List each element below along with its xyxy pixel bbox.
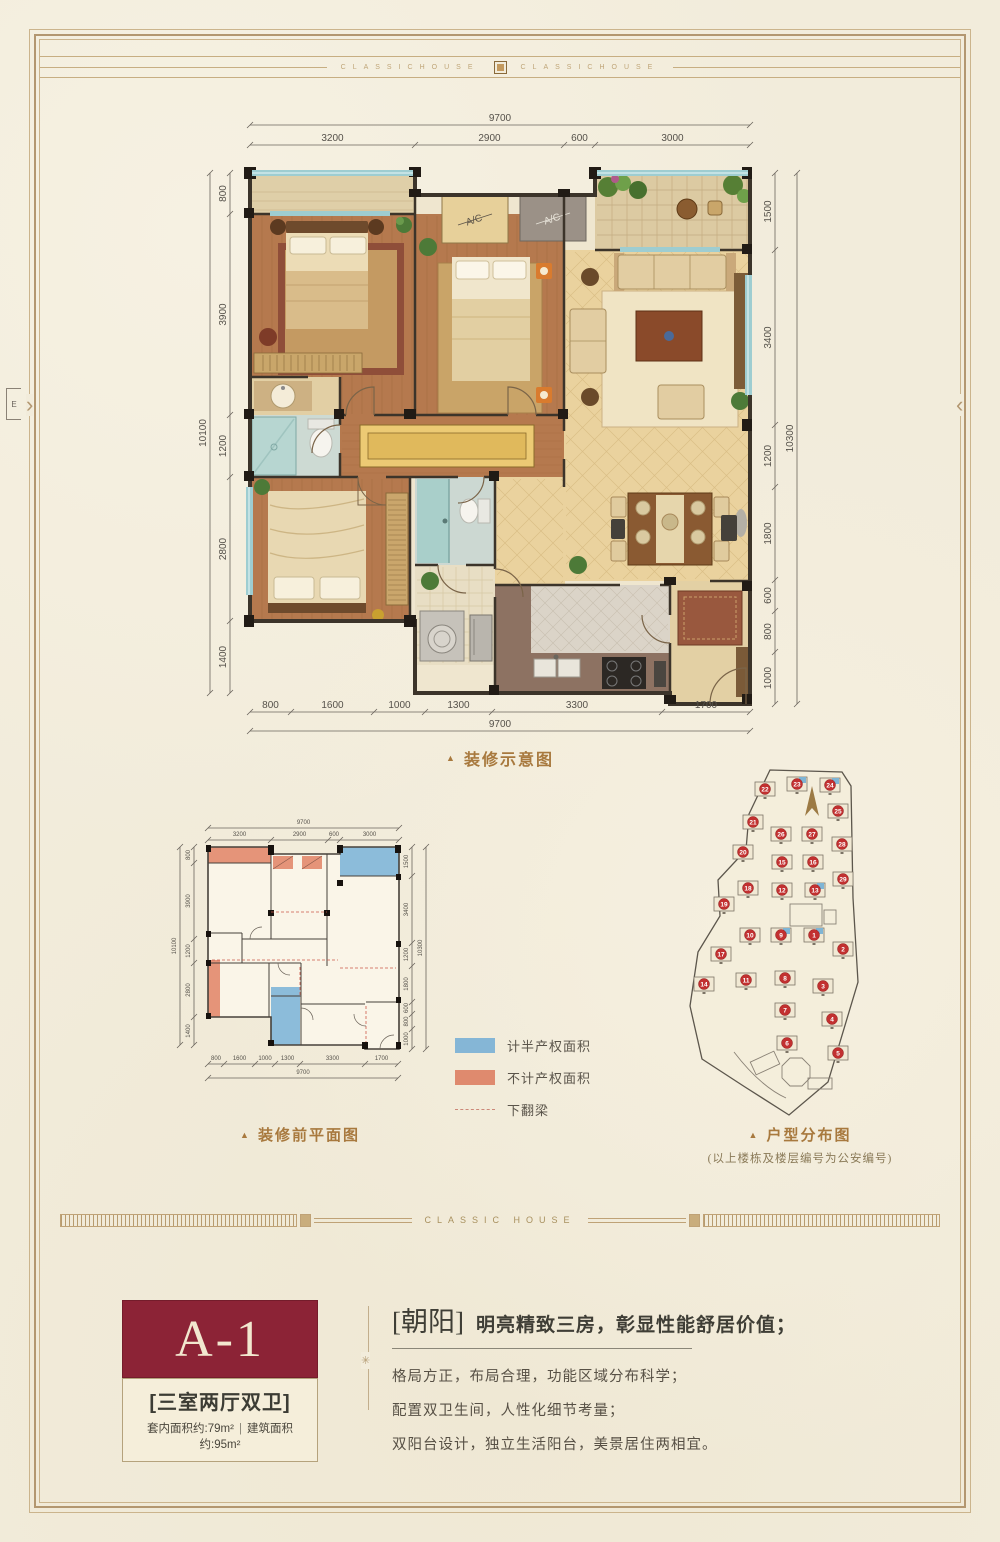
elevation-mark: E xyxy=(6,388,21,420)
dim-label: 1200 xyxy=(763,444,774,467)
dim-label: 2900 xyxy=(478,133,501,144)
dim-label: 1500 xyxy=(404,854,410,868)
unit-areas: 套内面积约:79m²|建筑面积约:95m² xyxy=(127,1420,313,1452)
dim-label: 3200 xyxy=(321,133,344,144)
unit-info: [三室两厅双卫] 套内面积约:79m²|建筑面积约:95m² xyxy=(122,1378,318,1462)
caption-marker-icon: ▲ xyxy=(446,753,457,763)
frame-chevron-left-icon: › xyxy=(26,394,33,416)
dim-label: 1500 xyxy=(763,200,774,223)
building-number: 14 xyxy=(700,981,708,988)
building-number: 3 xyxy=(821,983,825,990)
pillow xyxy=(330,237,366,254)
dim-label: 1600 xyxy=(233,1056,247,1062)
building-number: 23 xyxy=(793,781,801,788)
bed-headboard xyxy=(268,603,366,613)
side-table xyxy=(259,328,277,346)
dim-label: 2800 xyxy=(218,537,229,560)
fridge xyxy=(470,615,492,661)
site-map-note: (以上楼栋及楼层编号为公安编号) xyxy=(600,1150,1000,1166)
dim-label: 3400 xyxy=(404,902,410,916)
pillow xyxy=(320,577,360,599)
dim-label: 3000 xyxy=(661,133,684,144)
building-number: 7 xyxy=(783,1007,787,1014)
dim-label: 800 xyxy=(186,849,192,860)
vertical-divider: ✳ xyxy=(368,1306,369,1410)
chair-dark xyxy=(721,515,737,541)
dim-label: 1600 xyxy=(321,700,344,711)
pillow xyxy=(274,577,314,599)
dim-label: 600 xyxy=(763,587,774,604)
divider-square-icon xyxy=(689,1214,700,1227)
dim-label: 600 xyxy=(329,832,340,838)
dim-label: 9700 xyxy=(489,719,512,730)
living-balcony xyxy=(595,173,751,250)
building-number: 1 xyxy=(812,932,816,939)
pillow xyxy=(493,261,526,279)
dim-label: 3900 xyxy=(186,894,192,908)
dim-label: 1200 xyxy=(186,944,192,958)
band-line xyxy=(40,67,327,68)
building-number: 5 xyxy=(836,1050,840,1057)
dim-label: 2800 xyxy=(186,983,192,997)
second-bathroom xyxy=(415,477,495,565)
dim-label: 3900 xyxy=(218,303,229,326)
top-border-band: CLASSICHOUSE CLASSICHOUSE xyxy=(40,56,960,78)
pillow xyxy=(456,261,489,279)
intro-rule xyxy=(392,1348,692,1349)
legend-item-noncount-area: 不计产权面积 xyxy=(455,1068,591,1087)
legend: 计半产权面积 不计产权面积 下翻梁 xyxy=(455,1036,591,1119)
intro-line: 格局方正，布局合理，功能区域分布科学； xyxy=(392,1365,872,1386)
building-number: 19 xyxy=(720,901,728,908)
intro-headline: 明亮精致三房，彰显性能舒居价值； xyxy=(476,1310,796,1337)
stool xyxy=(708,201,722,215)
dim-label: 3400 xyxy=(763,326,774,349)
toilet-tank xyxy=(308,419,334,429)
dim-label: 1000 xyxy=(388,700,411,711)
dim-label: 10100 xyxy=(198,419,209,447)
second-bedroom xyxy=(250,477,410,621)
building-number: 9 xyxy=(779,932,783,939)
band-ornament-icon xyxy=(494,61,507,74)
dim-label: 1800 xyxy=(404,977,410,991)
area-inner: 套内面积约:79m² xyxy=(147,1423,234,1435)
building-number: 22 xyxy=(761,786,769,793)
building-number: 25 xyxy=(834,808,842,815)
building-number: 20 xyxy=(739,849,747,856)
legend-item-beam: 下翻梁 xyxy=(455,1100,591,1119)
plant-icon xyxy=(569,556,587,574)
dim-label: 9700 xyxy=(297,820,311,826)
hallway xyxy=(340,415,564,477)
chair xyxy=(611,541,626,561)
building-number: 24 xyxy=(826,782,834,789)
dim-label: 800 xyxy=(218,185,229,202)
blanket xyxy=(452,299,530,381)
flower-icon xyxy=(611,175,619,183)
side-table xyxy=(581,388,599,406)
entry-rug xyxy=(678,591,742,645)
band-line xyxy=(673,67,960,68)
legend-dash-icon xyxy=(455,1109,495,1110)
unit-type: [三室两厅双卫] xyxy=(127,1386,313,1415)
band-text-left: CLASSICHOUSE xyxy=(341,64,480,71)
divider-line xyxy=(588,1218,686,1223)
life-balcony xyxy=(415,565,495,665)
middle-divider: CLASSIC HOUSE xyxy=(60,1212,940,1228)
building-number: 28 xyxy=(838,841,846,848)
chair xyxy=(714,497,729,517)
dim-label: 600 xyxy=(571,133,588,144)
dim-label: 800 xyxy=(763,623,774,640)
building-number: 6 xyxy=(785,1040,789,1047)
building-number: 15 xyxy=(778,859,786,866)
dim-label: 3300 xyxy=(326,1056,340,1062)
small-plan-caption: ▲ 装修前平面图 xyxy=(150,1124,450,1145)
divider-flower-icon: ✳ xyxy=(361,1352,370,1369)
dim-label: 9700 xyxy=(489,113,512,124)
site-distribution-map: 2223242125262728201516291812131917141091… xyxy=(690,756,990,1121)
dim-label: 1200 xyxy=(218,434,229,457)
dim-label: 3200 xyxy=(233,832,247,838)
building-number: 16 xyxy=(809,859,817,866)
dim-label: 1800 xyxy=(763,522,774,545)
band-text-right: CLASSICHOUSE xyxy=(521,64,660,71)
legend-swatch-blue xyxy=(455,1038,495,1053)
dim-label: 800 xyxy=(404,1016,410,1027)
dim-label: 2900 xyxy=(293,832,307,838)
dim-label: 1300 xyxy=(447,700,470,711)
building-number: 10 xyxy=(746,932,754,939)
plant-icon xyxy=(419,238,437,256)
main-floor-plan: A/C A/C xyxy=(190,95,810,775)
master-balcony xyxy=(250,173,415,214)
area-halfcount xyxy=(340,847,399,876)
master-bathroom xyxy=(250,377,340,477)
nightstand xyxy=(270,219,286,235)
entry-hall xyxy=(670,581,750,704)
divider-text: CLASSIC HOUSE xyxy=(424,1215,575,1225)
building-number: 27 xyxy=(808,831,816,838)
dim-label: 3300 xyxy=(566,700,589,711)
sink xyxy=(534,659,556,677)
dim-label: 800 xyxy=(262,700,279,711)
page: CLASSICHOUSE CLASSICHOUSE › ‹ E xyxy=(0,0,1000,1542)
dim-label: 1000 xyxy=(258,1056,272,1062)
table-decor xyxy=(664,331,674,341)
building-number: 18 xyxy=(744,885,752,892)
dim-label: 1200 xyxy=(404,947,410,961)
site-map-caption: ▲ 户型分布图 xyxy=(650,1124,950,1145)
unit-card: A-1 [三室两厅双卫] 套内面积约:79m²|建筑面积约:95m² xyxy=(122,1300,318,1462)
legend-swatch-orange xyxy=(455,1070,495,1085)
ac-platform-2: A/C xyxy=(520,195,586,241)
area-noncount xyxy=(208,960,220,1017)
intro-tag: [朝阳] xyxy=(392,1300,464,1339)
dim-label: 10100 xyxy=(172,937,178,954)
dim-label: 1400 xyxy=(218,645,229,668)
appliance xyxy=(654,661,666,687)
caption-marker-icon: ▲ xyxy=(749,1130,760,1140)
intro-block: [朝阳] 明亮精致三房，彰显性能舒居价值； 格局方正，布局合理，功能区域分布科学… xyxy=(392,1300,872,1454)
frame-chevron-right-icon: ‹ xyxy=(956,394,963,416)
dim-label: 1300 xyxy=(281,1056,295,1062)
dim-label: 3000 xyxy=(363,832,377,838)
chaise xyxy=(658,385,704,419)
dim-label: 1700 xyxy=(695,700,718,711)
legend-item-half-area: 计半产权面积 xyxy=(455,1036,591,1055)
area-noncount xyxy=(208,847,271,863)
dim-label: 1000 xyxy=(763,666,774,689)
ac-platform-1: A/C xyxy=(442,195,508,243)
sink xyxy=(558,659,580,677)
chair-dark xyxy=(611,519,625,539)
kitchen-counter xyxy=(495,585,531,653)
bed-headboard xyxy=(286,221,368,233)
divider-stripes-left xyxy=(60,1214,297,1227)
dim-label: 9700 xyxy=(296,1070,310,1076)
unit-code: A-1 xyxy=(122,1300,318,1378)
building-number: 17 xyxy=(717,951,725,958)
divider-stripes-right xyxy=(703,1214,940,1227)
building-number: 29 xyxy=(839,876,847,883)
intro-line: 双阳台设计，独立生活阳台，美景居住两相宜。 xyxy=(392,1433,872,1454)
intro-line: 配置双卫生间，人性化细节考量； xyxy=(392,1399,872,1420)
blanket xyxy=(286,271,368,329)
divider-square-icon xyxy=(300,1214,311,1227)
nightstand xyxy=(368,219,384,235)
caption-marker-icon: ▲ xyxy=(240,1130,251,1140)
dim-label: 1000 xyxy=(404,1032,410,1046)
dim-label: 600 xyxy=(404,1002,410,1013)
plant-icon xyxy=(254,479,270,495)
dim-label: 1700 xyxy=(375,1056,389,1062)
building-number: 2 xyxy=(841,946,845,953)
dim-label: 1400 xyxy=(186,1024,192,1038)
building-number: 26 xyxy=(777,831,785,838)
side-table xyxy=(581,268,599,286)
pillow xyxy=(290,237,326,254)
toilet-tank xyxy=(478,499,490,523)
building-number: 21 xyxy=(749,819,757,826)
washer-door xyxy=(428,625,456,653)
dim-label: 10300 xyxy=(418,939,424,956)
dim-label: 800 xyxy=(211,1056,222,1062)
divider-line xyxy=(314,1218,412,1223)
pre-decoration-plan: 9700320029006003000101008003900120028001… xyxy=(150,792,450,1122)
building-number: 13 xyxy=(811,887,819,894)
chair xyxy=(714,541,729,561)
chair xyxy=(611,497,626,517)
building-number: 4 xyxy=(830,1016,834,1023)
dim-chain xyxy=(227,170,233,696)
building-number: 11 xyxy=(743,977,750,984)
dim-label: 10300 xyxy=(785,424,796,452)
building-number: 8 xyxy=(783,975,787,982)
round-table xyxy=(677,199,697,219)
sofa xyxy=(618,255,726,289)
plant-icon xyxy=(421,572,439,590)
building-number: 12 xyxy=(778,887,786,894)
